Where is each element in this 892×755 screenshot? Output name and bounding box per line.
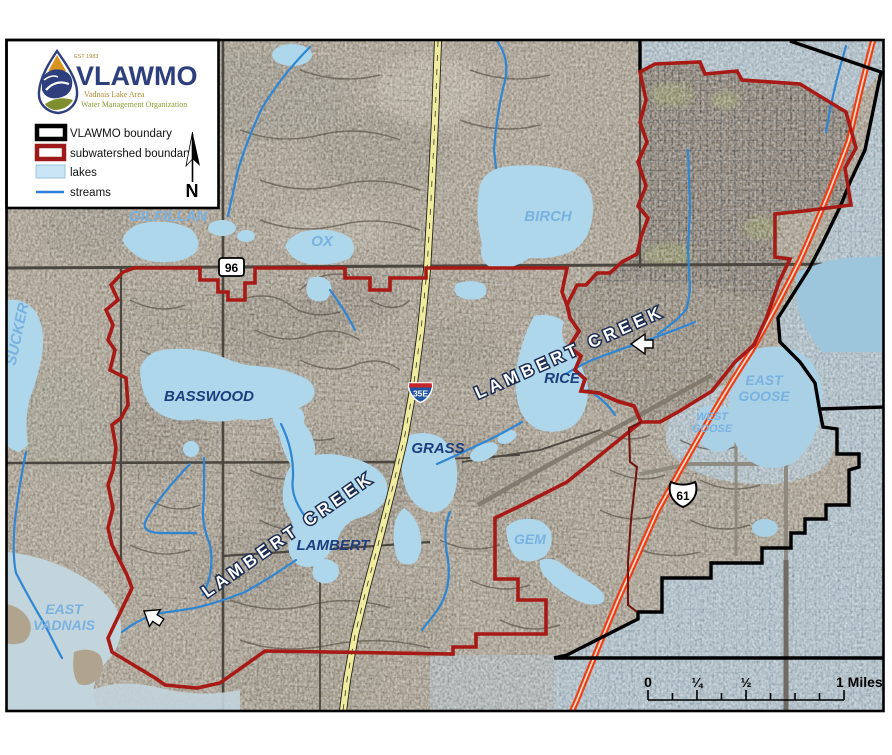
svg-text:VLAWMO: VLAWMO — [76, 61, 198, 91]
svg-text:61: 61 — [676, 489, 690, 503]
svg-text:GRASS: GRASS — [411, 440, 464, 457]
svg-text:GEM: GEM — [514, 531, 546, 547]
svg-text:RICE: RICE — [544, 370, 581, 387]
svg-text:EAST: EAST — [45, 601, 84, 617]
svg-text:1 Miles: 1 Miles — [836, 674, 883, 690]
svg-text:OX: OX — [311, 233, 334, 250]
svg-text:Water Management Organization: Water Management Organization — [81, 100, 187, 109]
svg-text:35E: 35E — [413, 389, 428, 399]
svg-text:VADNAIS: VADNAIS — [33, 617, 96, 633]
svg-text:½: ½ — [741, 675, 752, 690]
svg-text:0: 0 — [644, 674, 652, 690]
svg-text:VLAWMO boundary: VLAWMO boundary — [70, 128, 172, 140]
svg-text:EAST: EAST — [745, 372, 784, 388]
svg-text:lakes: lakes — [70, 167, 97, 179]
svg-text:BASSWOOD: BASSWOOD — [164, 388, 254, 405]
svg-text:LAMBERT: LAMBERT — [296, 537, 371, 554]
svg-text:streams: streams — [70, 187, 111, 199]
svg-text:WEST: WEST — [696, 411, 729, 423]
svg-text:Vadnais Lake Area: Vadnais Lake Area — [84, 90, 145, 99]
svg-text:EST 1983: EST 1983 — [74, 54, 98, 60]
svg-text:GOOSE: GOOSE — [692, 423, 733, 435]
svg-text:GOOSE: GOOSE — [738, 388, 790, 404]
svg-text:BIRCH: BIRCH — [524, 208, 573, 225]
svg-text:GILFILLAN: GILFILLAN — [129, 208, 208, 225]
svg-text:N: N — [186, 181, 199, 201]
svg-text:subwatershed boundary: subwatershed boundary — [70, 148, 193, 160]
svg-text:¼: ¼ — [692, 675, 704, 690]
svg-text:96: 96 — [225, 261, 239, 275]
